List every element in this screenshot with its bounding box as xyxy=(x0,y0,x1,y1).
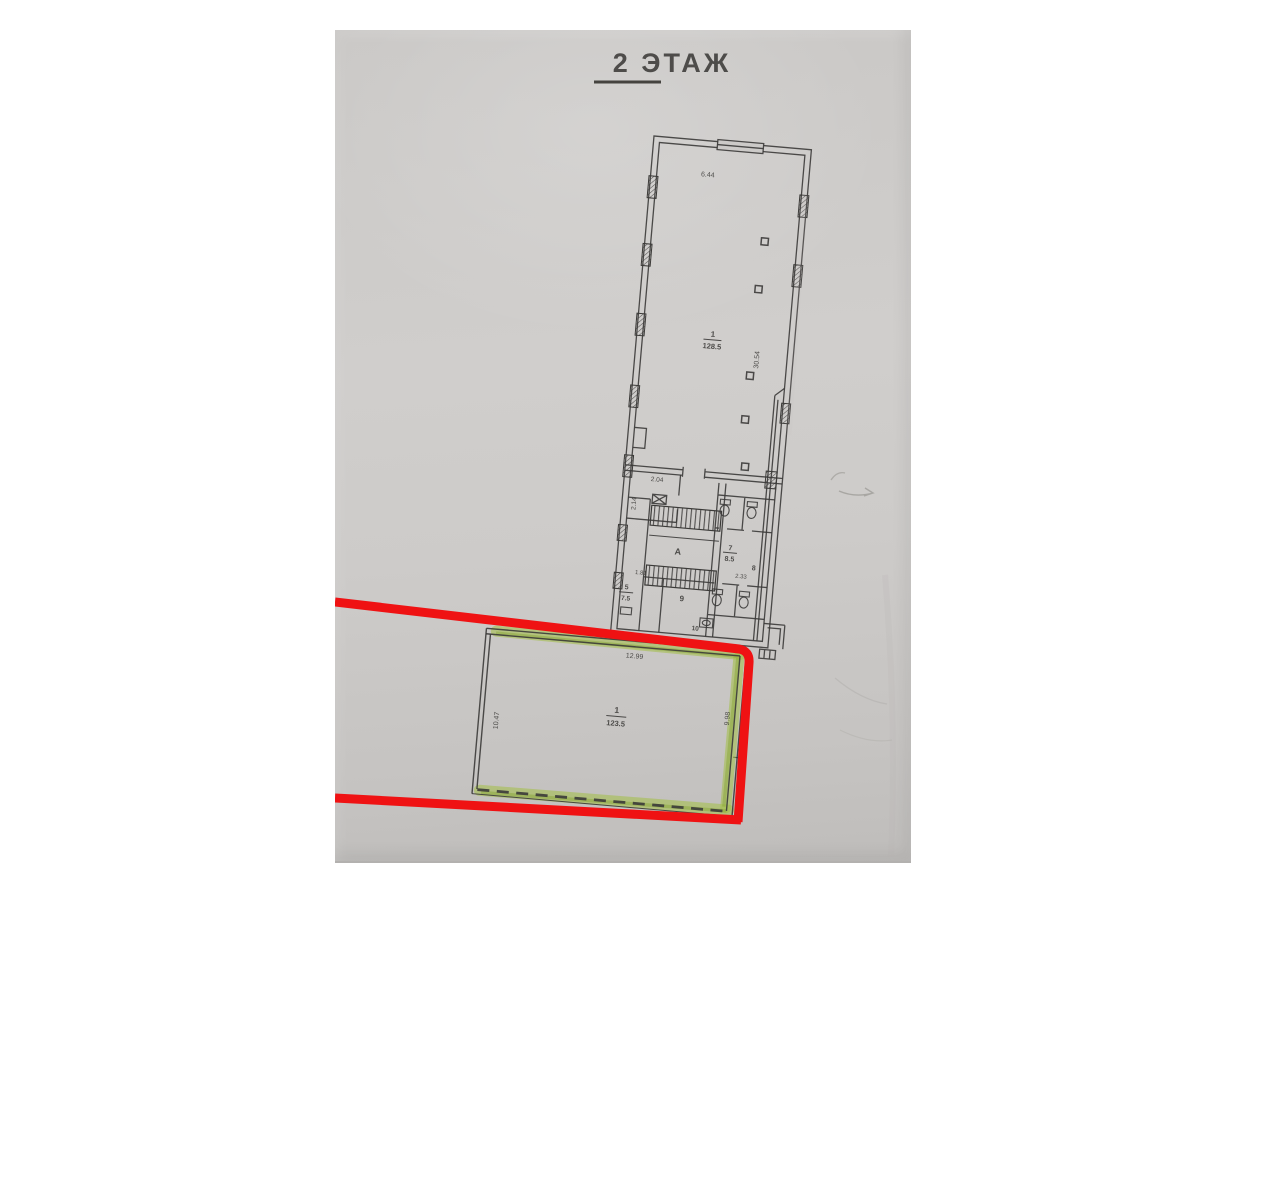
column-icons xyxy=(737,237,768,470)
sink-icon xyxy=(620,607,632,615)
annex-dim-left: 10.47 xyxy=(493,711,502,729)
annex-room-number: 1 xyxy=(614,705,620,715)
column-icon xyxy=(761,238,769,246)
annex-dim-top: 12.99 xyxy=(625,653,643,662)
floor-title: 2 ЭТАЖ xyxy=(613,48,731,78)
center-room-number: 9 xyxy=(679,594,685,603)
window-icon xyxy=(765,471,777,489)
annex-room-area: 123.5 xyxy=(606,718,625,729)
stair-letter: А xyxy=(674,546,682,557)
building-walls xyxy=(601,134,827,761)
column-icon xyxy=(755,285,763,293)
dim-small: 1.81 xyxy=(635,570,648,577)
main-room-area: 128.5 xyxy=(702,341,721,352)
staircase xyxy=(645,505,722,591)
window-icon xyxy=(635,313,646,336)
dim-vestibule-height: 2.14 xyxy=(630,497,638,511)
toilet-icon xyxy=(738,591,749,608)
right-room-number: 8 xyxy=(751,565,756,572)
window-icon xyxy=(617,524,627,541)
annex-room: 12.99 1 123.5 10.47 9.98 xyxy=(472,628,746,816)
floor-title-group: 2 ЭТАЖ xyxy=(594,48,731,82)
window-icon xyxy=(623,455,634,478)
wc-room-area: 8.5 xyxy=(724,556,734,564)
building-plan: 6.44 1 128.5 30.54 2.04 2.14 А 7 8.5 2.3… xyxy=(472,123,827,819)
pencil-marks xyxy=(789,195,893,857)
annex-dim-right: 9.98 xyxy=(724,711,732,725)
toilet-icon xyxy=(746,502,757,519)
left-room-area: 7.5 xyxy=(621,595,631,603)
bottom-room-number: 10 xyxy=(691,625,699,633)
floor-plan-svg: 2 ЭТАЖ xyxy=(335,30,911,861)
window-icon xyxy=(647,176,658,199)
main-room-number: 1 xyxy=(710,330,716,339)
window-icon xyxy=(641,243,652,266)
scanned-floor-plan-photo: 2 ЭТАЖ xyxy=(335,30,911,863)
dim-right-height: 30.54 xyxy=(753,351,762,369)
window-icon xyxy=(613,572,623,589)
screenshot-canvas: 2 ЭТАЖ xyxy=(0,0,1273,1197)
wc-room-number: 7 xyxy=(728,545,733,552)
dim-vestibule-width: 2.04 xyxy=(650,476,664,484)
dim-wc: 2.33 xyxy=(735,574,748,581)
left-room-number: 5 xyxy=(624,584,629,591)
dim-top-width: 6.44 xyxy=(701,171,715,179)
column-icon xyxy=(741,463,749,471)
window-icons xyxy=(613,176,809,602)
column-icon xyxy=(746,372,754,380)
window-icon xyxy=(629,385,640,408)
column-icon xyxy=(741,416,749,424)
